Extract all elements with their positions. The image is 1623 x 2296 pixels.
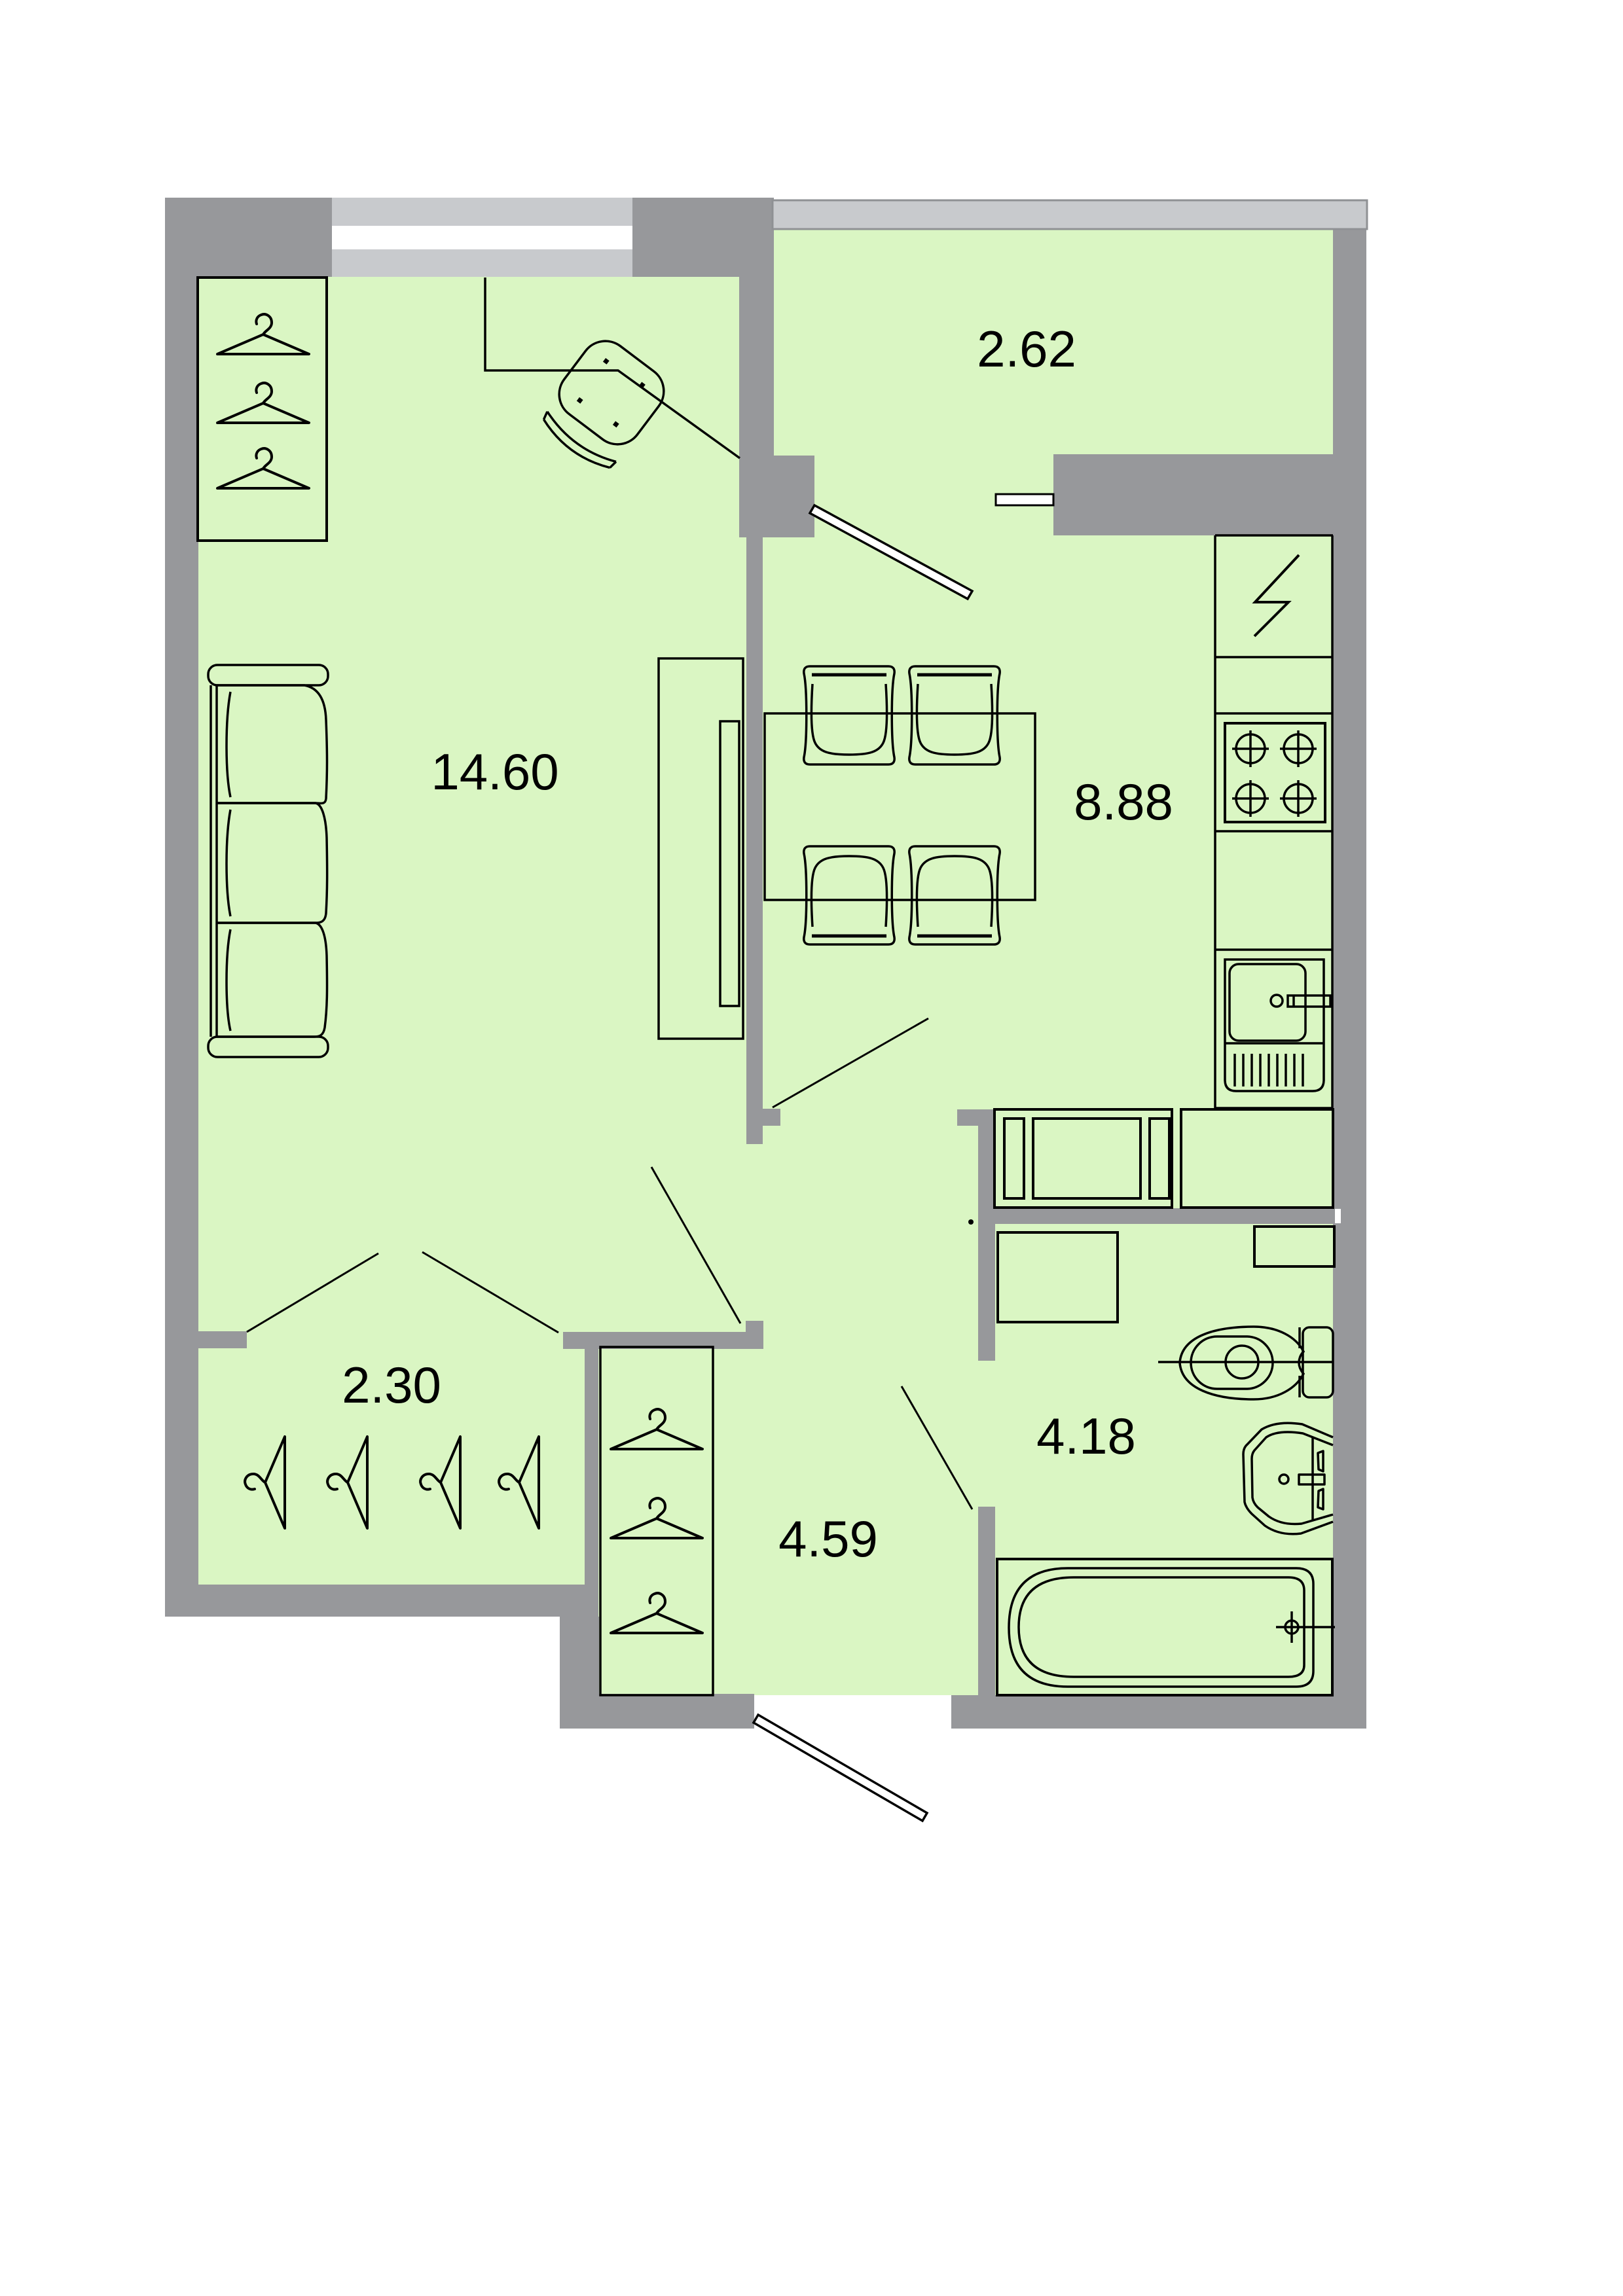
svg-text:8.88: 8.88 [1074, 773, 1173, 831]
svg-text:4.59: 4.59 [778, 1510, 878, 1568]
svg-text:2.62: 2.62 [977, 320, 1076, 378]
svg-text:4.18: 4.18 [1036, 1407, 1136, 1465]
svg-text:2.30: 2.30 [342, 1356, 441, 1414]
svg-text:14.60: 14.60 [431, 743, 558, 800]
